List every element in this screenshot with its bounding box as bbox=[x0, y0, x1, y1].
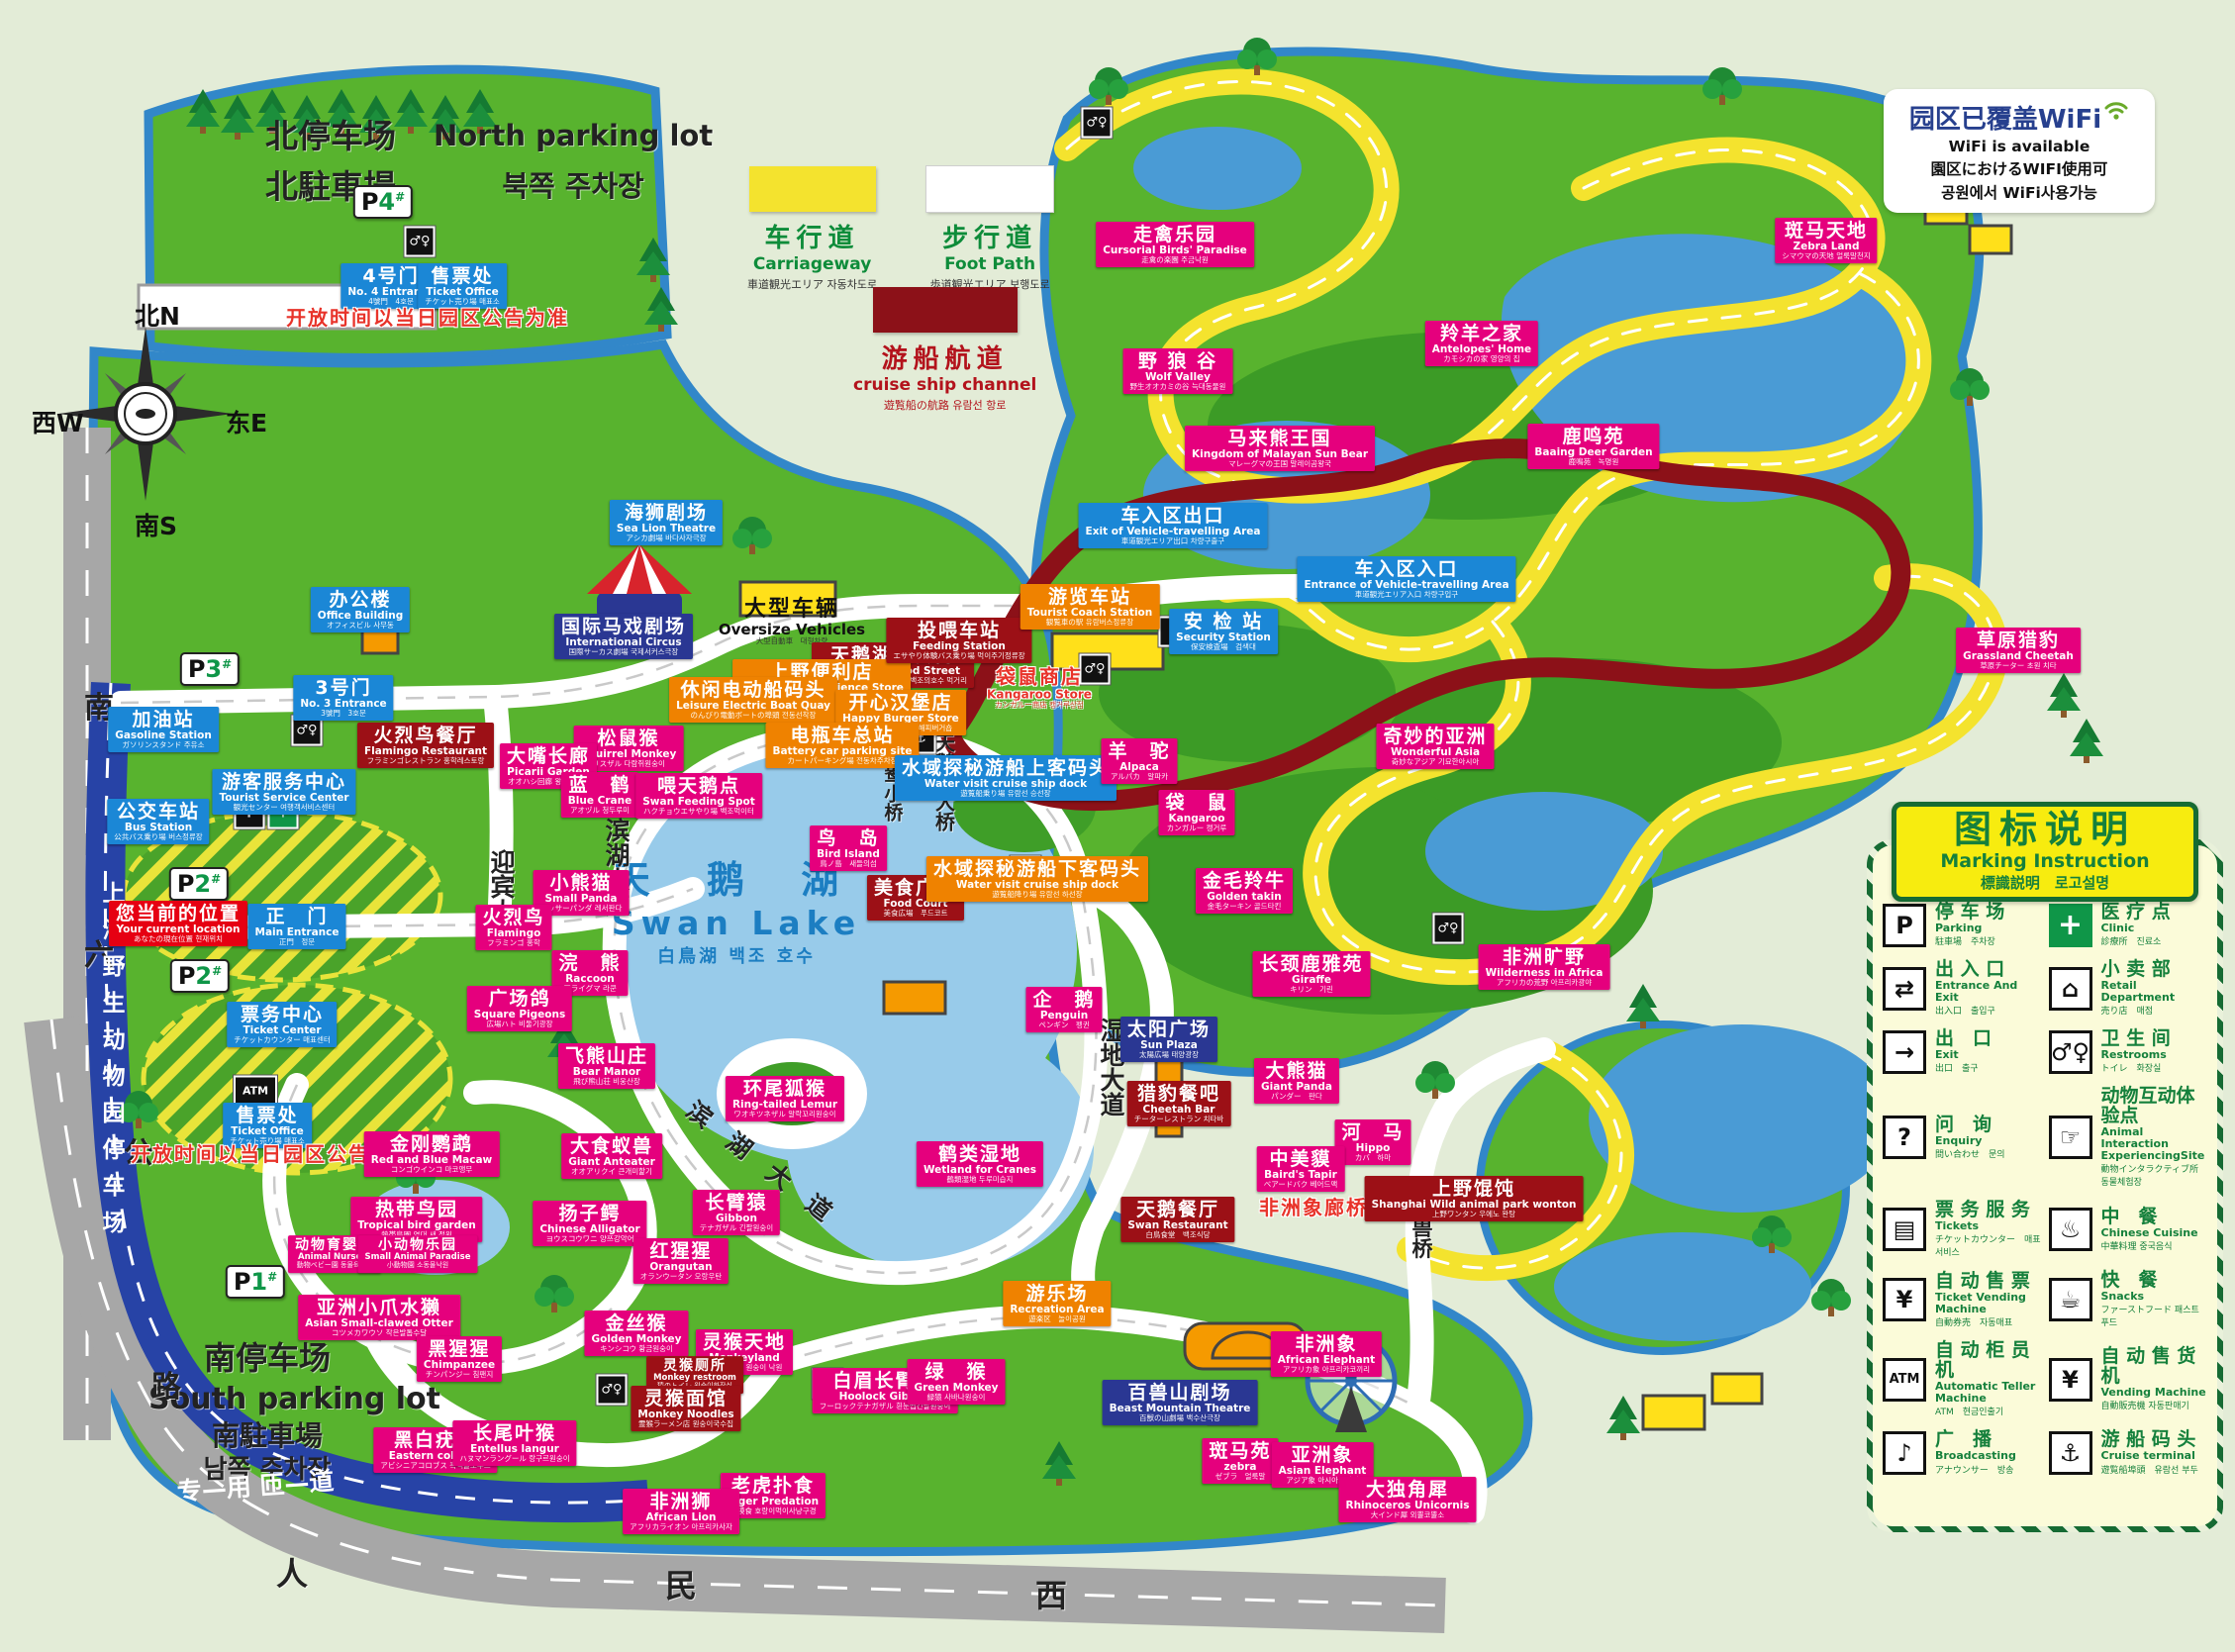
marking-panel-header: 图标说明 Marking Instruction 標識説明 로고설명 bbox=[1892, 802, 2198, 902]
ticket-machine-icon: ¥ bbox=[1883, 1278, 1926, 1321]
legend-item-entrance-exit: 出 入 口Entrance And Exit出入口 출입구 bbox=[1935, 960, 2042, 1017]
legend-item-ticket-vending: 自 动 售 票Ticket Vending Machine自動券売 자동매표 bbox=[1935, 1272, 2042, 1328]
south-parking-jp: 南駐車場 bbox=[148, 1418, 386, 1454]
hand-icon: ☞ bbox=[2049, 1116, 2092, 1159]
legend-item-vending-machine: 自 动 售 货 机Vending Machine自動販売機 자동판매기 bbox=[2101, 1347, 2208, 1411]
parking-icon: P bbox=[1883, 904, 1926, 947]
legend-footpath: 步行道 Foot Path 歩道観光エリア 보행도로 bbox=[926, 166, 1053, 292]
cruise-swatch bbox=[873, 287, 1018, 333]
legend-item-snacks: 快 餐Snacksファーストフード 패스트푸드 bbox=[2101, 1271, 2208, 1328]
south-parking-cn: 南停车场 bbox=[148, 1338, 386, 1380]
legend-cruise-channel: 游船航道 cruise ship channel 遊覧船の航路 유람선 항로 bbox=[853, 287, 1036, 413]
atm-icon: ATM bbox=[1883, 1358, 1926, 1402]
north-parking-kr: 북쪽 주차장 bbox=[434, 161, 713, 212]
legend-item-restrooms: 卫 生 间Restroomsトイレ 화장실 bbox=[2101, 1029, 2208, 1074]
snack-icon: ☕ bbox=[2049, 1278, 2092, 1321]
marking-instruction-panel: 图标说明 Marking Instruction 標識説明 로고설명 P停 车 … bbox=[1867, 839, 2223, 1532]
legend-item-animal-interaction: 动物互动体验点Animal Interaction ExperiencingSi… bbox=[2101, 1087, 2208, 1188]
bowl-icon: ♨ bbox=[2049, 1208, 2092, 1251]
retail-icon: ⌂ bbox=[2049, 967, 2092, 1011]
swan-lake-label: 天 鹅 湖 Swan Lake 白鳥湖 백조 호수 bbox=[612, 849, 861, 968]
marking-title-en: Marking Instruction bbox=[1896, 850, 2193, 872]
compass-west-label: 西W bbox=[32, 404, 84, 439]
south-parking-kr: 남쪽 주차장 bbox=[148, 1454, 386, 1488]
legend-item-retail: 小 卖 部Retail Department売り店 매점 bbox=[2101, 960, 2208, 1017]
legend-item-chinese-cuisine: 中 餐Chinese Cuisine中華料理 중국음식 bbox=[2101, 1208, 2208, 1252]
wifi-title: 园区已覆盖WiFi bbox=[1909, 99, 2101, 136]
legend-item-exit: 出 口Exit出口 출구 bbox=[1935, 1029, 2042, 1074]
compass-south-label: 南S bbox=[135, 507, 177, 542]
compass-east-label: 东E bbox=[226, 404, 267, 439]
wifi-kr: 공원에서 WiFi사용가능 bbox=[1892, 181, 2147, 203]
compass-north-label: 北N bbox=[135, 297, 180, 333]
legend-item-tickets: 票 务 服 务Ticketsチケットカウンター 매표서비스 bbox=[1935, 1201, 2042, 1258]
cruise-label: 游船航道 bbox=[853, 339, 1036, 375]
anchor-icon: ⚓ bbox=[2049, 1431, 2092, 1475]
south-parking-title: 南停车场 South parking lot 南駐車場 남쪽 주차장 bbox=[148, 1338, 386, 1488]
footpath-swatch bbox=[926, 166, 1053, 212]
marking-title-cn: 图标说明 bbox=[1896, 811, 2193, 850]
legend-item-cruise-terminal: 游 船 码 头Cruise terminal遊覧船埠頭 유람선 부두 bbox=[2101, 1430, 2208, 1475]
tickets-icon: ▤ bbox=[1883, 1208, 1926, 1251]
north-parking-cn: 北停车场 bbox=[265, 111, 396, 161]
exit-icon: → bbox=[1883, 1030, 1926, 1074]
question-icon: ? bbox=[1883, 1116, 1926, 1159]
north-parking-jp: 北駐車場 bbox=[265, 161, 396, 212]
legend-item-broadcasting: 广 播Broadcastingアナウンサー 방송 bbox=[1935, 1430, 2042, 1475]
footpath-label: 步行道 bbox=[926, 218, 1053, 254]
legend-item-atm: 自 动 柜 员 机Automatic Teller MachineATM 현금인… bbox=[1935, 1341, 2042, 1417]
south-parking-en: South parking lot bbox=[148, 1380, 386, 1418]
wifi-jp: 園区におけるWIFI使用可 bbox=[1892, 157, 2147, 179]
marking-title-sub: 標識説明 로고설명 bbox=[1896, 872, 2193, 893]
restroom-icon: ♂♀ bbox=[2049, 1030, 2092, 1074]
vending-icon: ¥ bbox=[2049, 1358, 2092, 1402]
legend-carriageway: 车行道 Carriageway 車道観光エリア 자동차도로 bbox=[747, 166, 877, 292]
carriageway-label: 车行道 bbox=[747, 218, 877, 254]
park-map-canvas: 北停车场 北駐車場 North parking lot 북쪽 주차장 南停车场 … bbox=[0, 0, 2235, 1652]
wifi-notice: 园区已覆盖WiFi WiFi is available 園区におけるWIFI使用… bbox=[1884, 89, 2155, 213]
north-parking-title: 北停车场 北駐車場 North parking lot 북쪽 주차장 bbox=[265, 111, 713, 212]
speaker-icon: ♪ bbox=[1883, 1431, 1926, 1475]
legend-item-enquiry: 问 询Enquiry問い合わせ 문의 bbox=[1935, 1116, 2042, 1160]
wifi-icon bbox=[2103, 99, 2129, 121]
path-type-legend: 车行道 Carriageway 車道観光エリア 자동차도로 步行道 Foot P… bbox=[747, 166, 1053, 292]
wifi-en: WiFi is available bbox=[1892, 138, 2147, 155]
legend-item-parking: 停 车 场Parking駐車場 주차장 bbox=[1935, 903, 2042, 947]
clinic-icon: + bbox=[2049, 904, 2092, 947]
entrance-exit-icon: ⇄ bbox=[1883, 967, 1926, 1011]
north-parking-en: North parking lot bbox=[434, 111, 713, 161]
marking-legend-grid: P停 车 场Parking駐車場 주차장+医 疗 点Clinic診療所 진료소⇄… bbox=[1883, 903, 2207, 1476]
legend-item-clinic: 医 疗 点Clinic診療所 진료소 bbox=[2101, 903, 2208, 947]
carriageway-swatch bbox=[749, 166, 876, 212]
